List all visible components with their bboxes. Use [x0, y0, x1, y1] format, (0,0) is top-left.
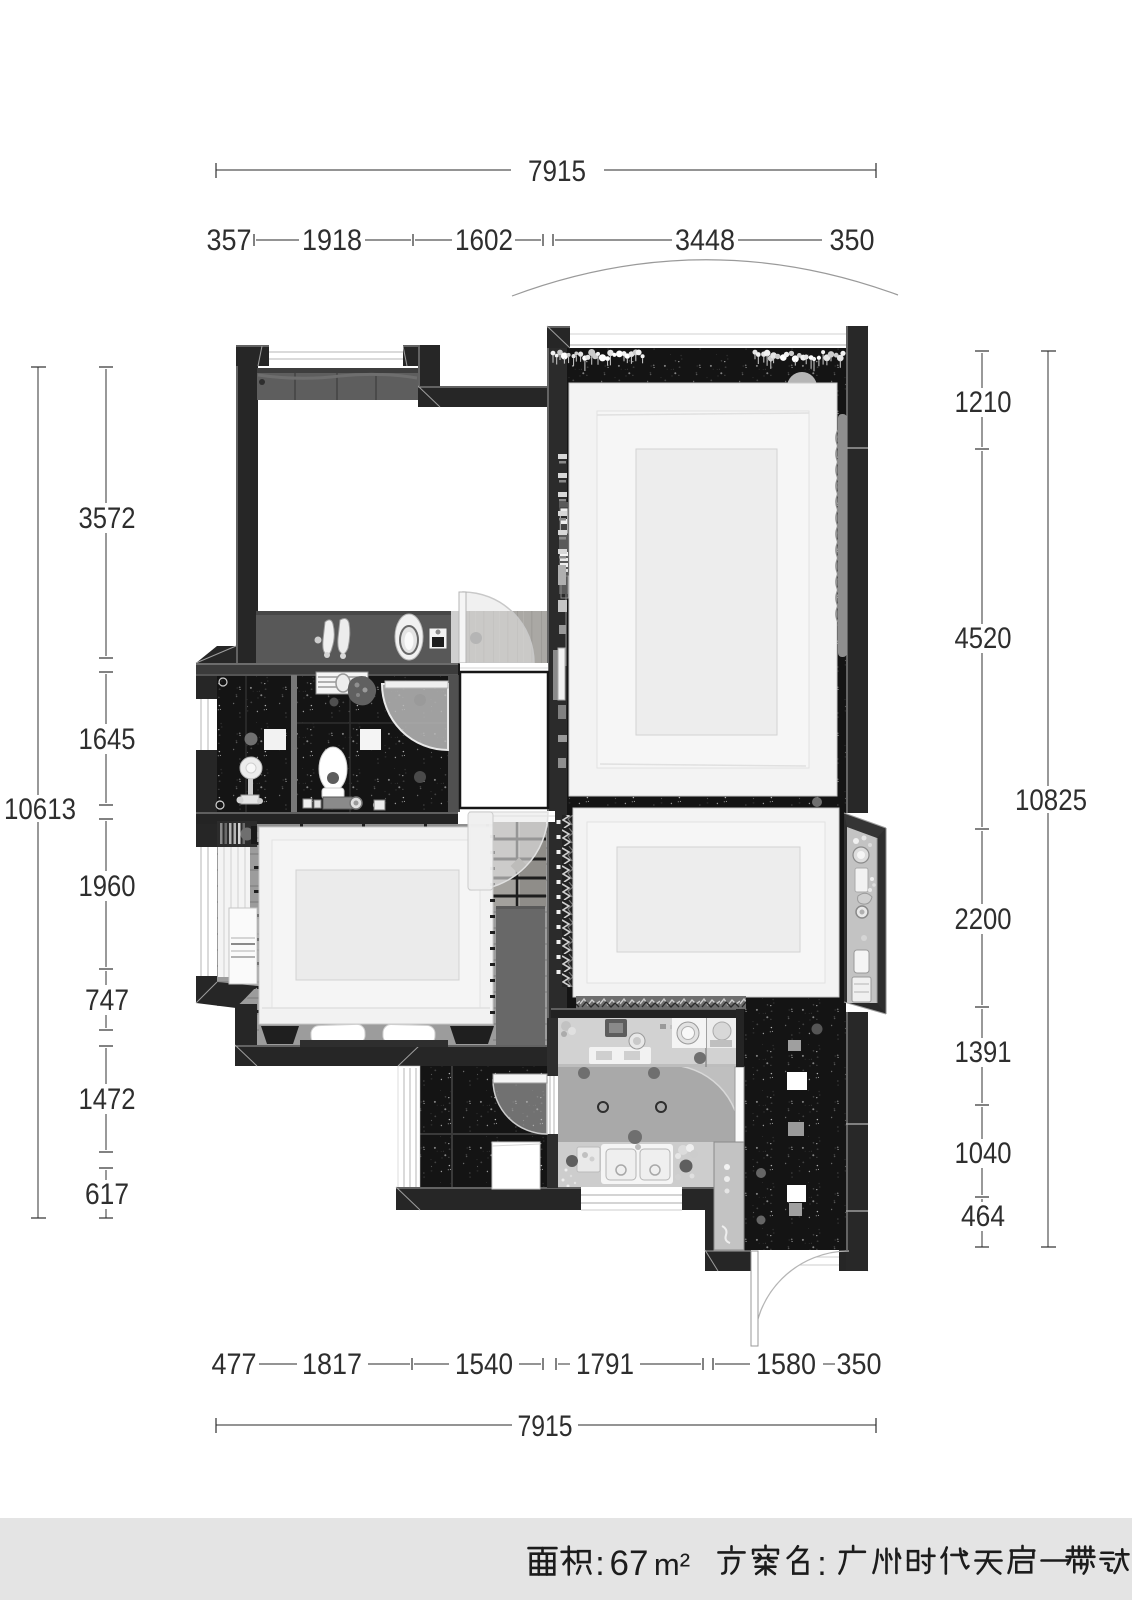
svg-text:464: 464 [961, 1200, 1005, 1233]
svg-text:1040: 1040 [955, 1137, 1012, 1170]
svg-text:1817: 1817 [302, 1348, 362, 1381]
svg-text:1472: 1472 [79, 1083, 136, 1116]
svg-text:350: 350 [837, 1348, 882, 1381]
svg-text:477: 477 [212, 1348, 257, 1381]
svg-text:357: 357 [207, 224, 252, 257]
svg-text:7915: 7915 [528, 155, 586, 188]
svg-text:3572: 3572 [79, 502, 136, 535]
svg-text:1918: 1918 [302, 224, 362, 257]
svg-text:1645: 1645 [79, 723, 136, 756]
svg-text:10825: 10825 [1015, 784, 1087, 817]
svg-text:1540: 1540 [455, 1348, 513, 1381]
svg-text:1210: 1210 [955, 386, 1012, 419]
svg-text:67: 67 [610, 1544, 649, 1583]
svg-text::: : [595, 1545, 604, 1583]
svg-text:617: 617 [85, 1178, 129, 1211]
svg-text:1791: 1791 [576, 1348, 634, 1381]
svg-text:1580: 1580 [756, 1348, 816, 1381]
svg-text:m²: m² [654, 1547, 690, 1582]
svg-text:2200: 2200 [955, 903, 1012, 936]
svg-text:3448: 3448 [675, 224, 735, 257]
svg-text::: : [817, 1545, 826, 1583]
svg-text:350: 350 [830, 224, 875, 257]
svg-text:7915: 7915 [518, 1410, 573, 1443]
svg-text:1602: 1602 [455, 224, 513, 257]
svg-text:10613: 10613 [4, 793, 76, 826]
svg-text:747: 747 [85, 984, 129, 1017]
svg-text:1391: 1391 [955, 1036, 1012, 1069]
svg-text:1960: 1960 [79, 870, 136, 903]
svg-text:4520: 4520 [955, 622, 1012, 655]
